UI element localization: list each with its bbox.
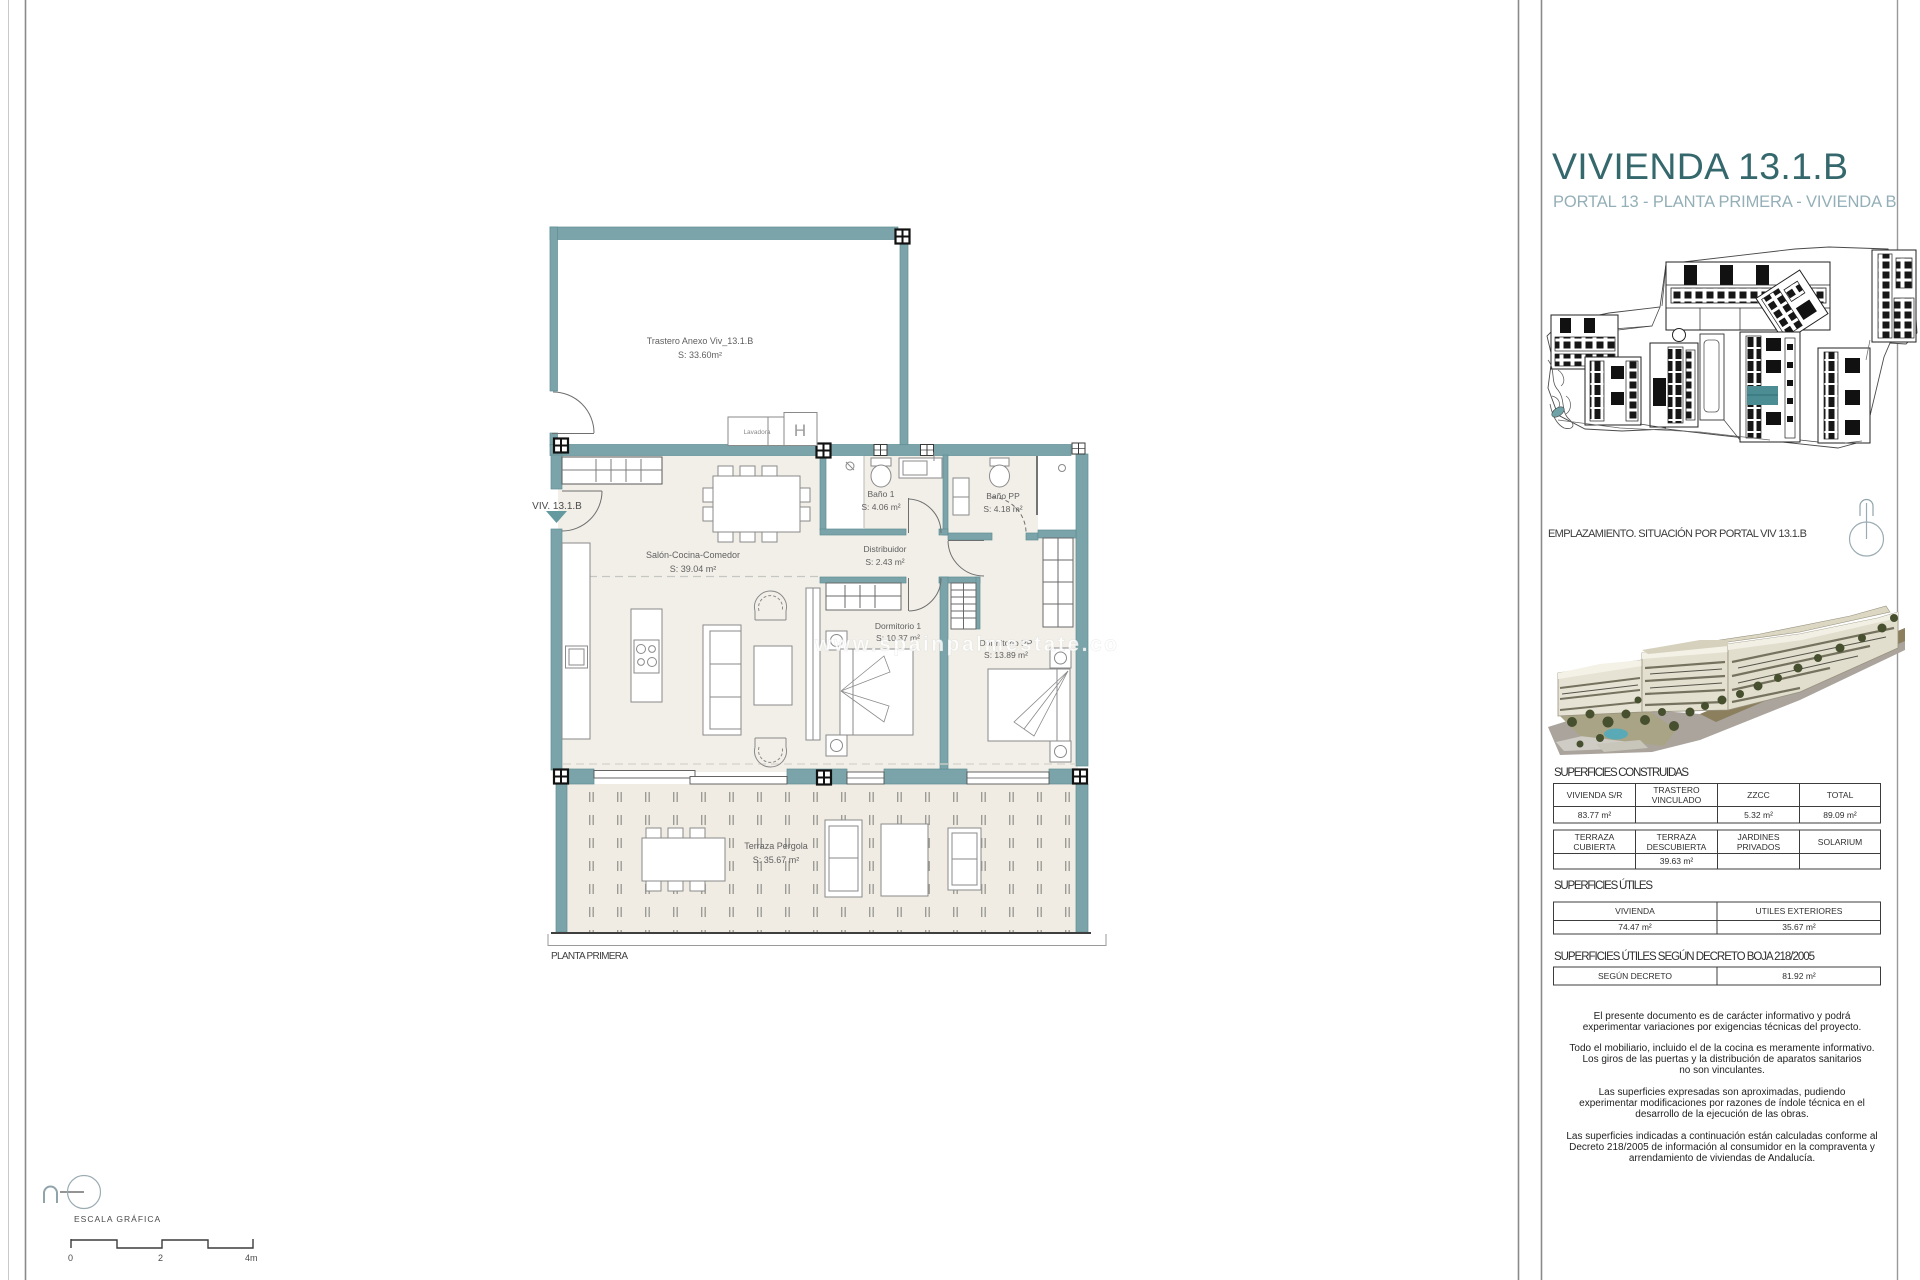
svg-text:VIV. 13.1.B: VIV. 13.1.B <box>532 501 582 512</box>
svg-text:Baño PP: Baño PP <box>986 491 1020 501</box>
svg-text:JARDINES: JARDINES <box>1737 832 1779 842</box>
svg-text:Distribuidor: Distribuidor <box>864 544 907 554</box>
svg-text:El presente documento es de ca: El presente documento es de carácter inf… <box>1594 1011 1851 1022</box>
svg-text:S: 33.60m²: S: 33.60m² <box>678 350 722 360</box>
svg-text:Las superficies indicadas a co: Las superficies indicadas a continuación… <box>1566 1131 1877 1142</box>
svg-text:PLANTA PRIMERA: PLANTA PRIMERA <box>551 951 629 962</box>
svg-text:experimentar modificaciones po: experimentar modificaciones por razones … <box>1579 1098 1865 1109</box>
svg-text:VINCULADO: VINCULADO <box>1652 795 1702 805</box>
svg-text:0: 0 <box>68 1253 73 1263</box>
svg-text:TERRAZA: TERRAZA <box>1575 832 1615 842</box>
svg-text:Baño 1: Baño 1 <box>868 489 895 499</box>
svg-text:www.spainpalmestate.co: www.spainpalmestate.co <box>814 633 1118 656</box>
svg-text:SEGÚN DECRETO: SEGÚN DECRETO <box>1598 971 1672 981</box>
svg-text:experimentar variaciones por e: experimentar variaciones por exigencias … <box>1583 1022 1861 1033</box>
svg-text:89.09 m²: 89.09 m² <box>1823 810 1857 820</box>
svg-text:S: 35.67 m²: S: 35.67 m² <box>753 855 800 865</box>
svg-text:Terraza Pergola: Terraza Pergola <box>744 841 808 851</box>
svg-text:35.67 m²: 35.67 m² <box>1782 922 1816 932</box>
svg-text:2: 2 <box>158 1253 163 1263</box>
svg-text:Dormitorio 1: Dormitorio 1 <box>875 621 922 631</box>
svg-text:S: 4.06 m²: S: 4.06 m² <box>861 502 900 512</box>
svg-text:TOTAL: TOTAL <box>1827 790 1854 800</box>
svg-text:S: 2.43 m²: S: 2.43 m² <box>865 557 904 567</box>
svg-text:81.92 m²: 81.92 m² <box>1782 971 1816 981</box>
svg-text:VIVIENDA S/R: VIVIENDA S/R <box>1567 790 1623 800</box>
svg-text:Salón-Cocina-Comedor: Salón-Cocina-Comedor <box>646 550 740 560</box>
svg-text:S: 39.04 m²: S: 39.04 m² <box>670 564 717 574</box>
svg-text:PRIVADOS: PRIVADOS <box>1737 842 1781 852</box>
svg-text:H: H <box>794 421 806 440</box>
svg-text:Decreto 218/2005 de informaci: Decreto 218/2005 de información al consu… <box>1569 1142 1875 1153</box>
svg-text:5.32 m²: 5.32 m² <box>1744 810 1773 820</box>
svg-text:SUPERFICIES ÚTILES SEGÚN DECRE: SUPERFICIES ÚTILES SEGÚN DECRETO BOJA 21… <box>1554 950 1816 963</box>
svg-text:SUPERFICIES CONSTRUIDAS: SUPERFICIES CONSTRUIDAS <box>1554 767 1690 779</box>
svg-text:Todo el mobiliario, incluido e: Todo el mobiliario, incluido el de la co… <box>1569 1043 1874 1054</box>
svg-text:SUPERFICIES ÚTILES: SUPERFICIES ÚTILES <box>1554 879 1654 892</box>
svg-text:VIVIENDA: VIVIENDA <box>1615 906 1655 916</box>
svg-text:Lavadora: Lavadora <box>743 429 770 436</box>
svg-text:83.77 m²: 83.77 m² <box>1578 810 1612 820</box>
svg-text:ZZCC: ZZCC <box>1747 790 1770 800</box>
svg-text:no son vinculantes.: no son vinculantes. <box>1679 1065 1765 1076</box>
svg-text:UTILES EXTERIORES: UTILES EXTERIORES <box>1756 906 1843 916</box>
svg-text:SOLARIUM: SOLARIUM <box>1818 837 1862 847</box>
svg-text:Las superficies expresadas son: Las superficies expresadas son aproximad… <box>1599 1087 1846 1098</box>
svg-text:74.47 m²: 74.47 m² <box>1618 922 1652 932</box>
svg-text:S: 4.18 m²: S: 4.18 m² <box>983 504 1022 514</box>
svg-text:Trastero Anexo Viv_13.1.B: Trastero Anexo Viv_13.1.B <box>647 336 754 346</box>
svg-text:4m: 4m <box>245 1253 258 1263</box>
svg-text:ESCALA GRÁFICA: ESCALA GRÁFICA <box>74 1214 161 1224</box>
svg-text:EMPLAZAMIENTO. SITUACIÓN POR P: EMPLAZAMIENTO. SITUACIÓN POR PORTAL VIV … <box>1548 527 1808 540</box>
svg-text:desarrollo de la ejecución de: desarrollo de la ejecución de las obras. <box>1635 1109 1808 1120</box>
svg-text:CUBIERTA: CUBIERTA <box>1573 842 1616 852</box>
svg-text:VIVIENDA 13.1.B: VIVIENDA 13.1.B <box>1552 145 1849 187</box>
svg-text:DESCUBIERTA: DESCUBIERTA <box>1647 842 1707 852</box>
svg-text:PORTAL 13 - PLANTA PRIMERA - V: PORTAL 13 - PLANTA PRIMERA - VIVIENDA B <box>1553 193 1897 211</box>
svg-text:TERRAZA: TERRAZA <box>1657 832 1697 842</box>
svg-text:arrendamiento de viviendas de: arrendamiento de viviendas de Andalucía. <box>1629 1153 1815 1164</box>
svg-text:Los giros de las puertas y la: Los giros de las puertas y la distribuci… <box>1582 1054 1861 1065</box>
svg-text:TRASTERO: TRASTERO <box>1653 785 1700 795</box>
svg-text:39.63 m²: 39.63 m² <box>1660 856 1694 866</box>
